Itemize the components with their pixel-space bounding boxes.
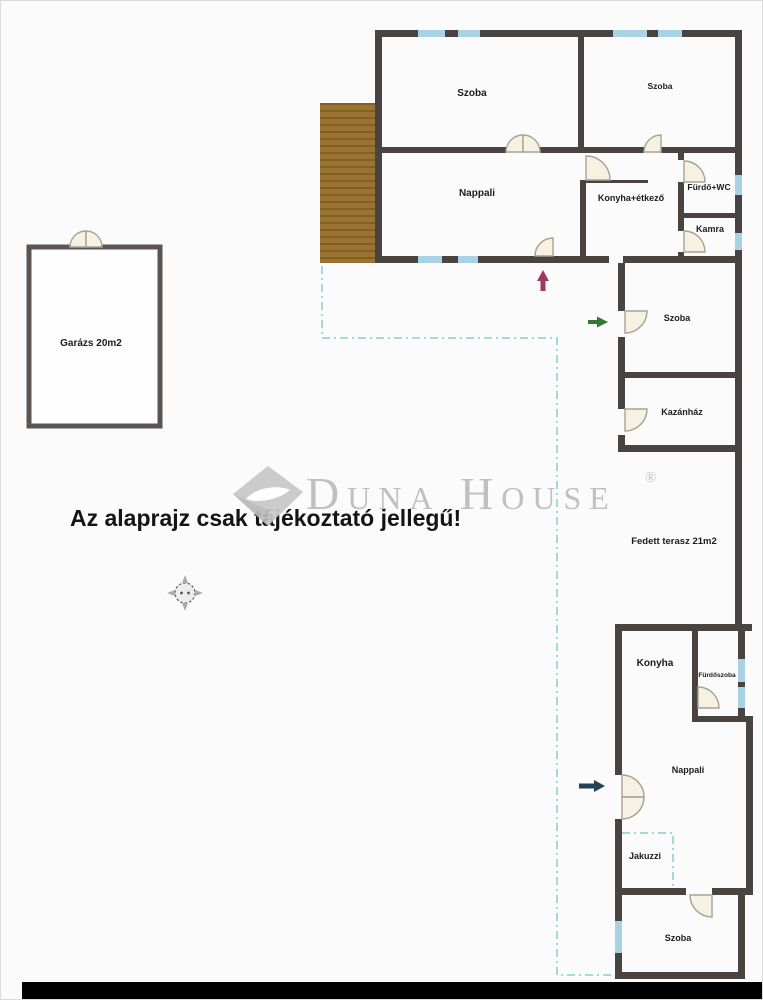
room-label-nappali-top: Nappali bbox=[459, 188, 495, 199]
window bbox=[418, 30, 445, 37]
bottom-black-band bbox=[22, 982, 763, 1000]
floor-plan-image: Szoba Szoba Nappali Konyha+étkező Fürdő+… bbox=[0, 0, 763, 1000]
window bbox=[658, 30, 682, 37]
room-label-nappali-also: Nappali bbox=[672, 765, 705, 775]
floor-plan-canvas: Szoba Szoba Nappali Konyha+étkező Fürdő+… bbox=[0, 0, 763, 1000]
room-label-konyha-also: Konyha bbox=[637, 658, 674, 669]
room-label-szoba-right: Szoba bbox=[664, 313, 691, 323]
garage-walls bbox=[29, 247, 160, 426]
room-label-szoba-also: Szoba bbox=[665, 933, 692, 943]
window bbox=[735, 175, 742, 195]
watermark-registered-mark: ® bbox=[645, 470, 656, 486]
room-label-furdo-wc: Fürdő+WC bbox=[687, 182, 730, 192]
window bbox=[613, 30, 647, 37]
room-label-jakuzzi: Jakuzzi bbox=[629, 851, 661, 861]
window bbox=[458, 256, 478, 263]
window bbox=[738, 659, 745, 682]
window bbox=[738, 687, 745, 708]
room-label-kazanhaz: Kazánház bbox=[661, 407, 703, 417]
window bbox=[735, 233, 742, 250]
room-label-furdoszoba: Fürdőszoba bbox=[698, 672, 736, 679]
garage bbox=[29, 231, 160, 426]
window bbox=[458, 30, 480, 37]
room-label-kamra: Kamra bbox=[696, 224, 725, 234]
watermark-brand-text: Duna House bbox=[306, 468, 617, 519]
window bbox=[615, 921, 622, 953]
terrace-right-wall bbox=[735, 452, 742, 624]
room-label-konyha-etkezo: Konyha+étkező bbox=[598, 193, 665, 203]
wood-deck bbox=[320, 103, 375, 263]
room-label-fedett-terasz: Fedett terasz 21m2 bbox=[631, 536, 717, 547]
window bbox=[418, 256, 442, 263]
room-label-szoba-top-right: Szoba bbox=[647, 81, 672, 91]
room-label-szoba-top-left: Szoba bbox=[457, 88, 487, 99]
room-label-garazs: Garázs 20m2 bbox=[60, 338, 122, 349]
